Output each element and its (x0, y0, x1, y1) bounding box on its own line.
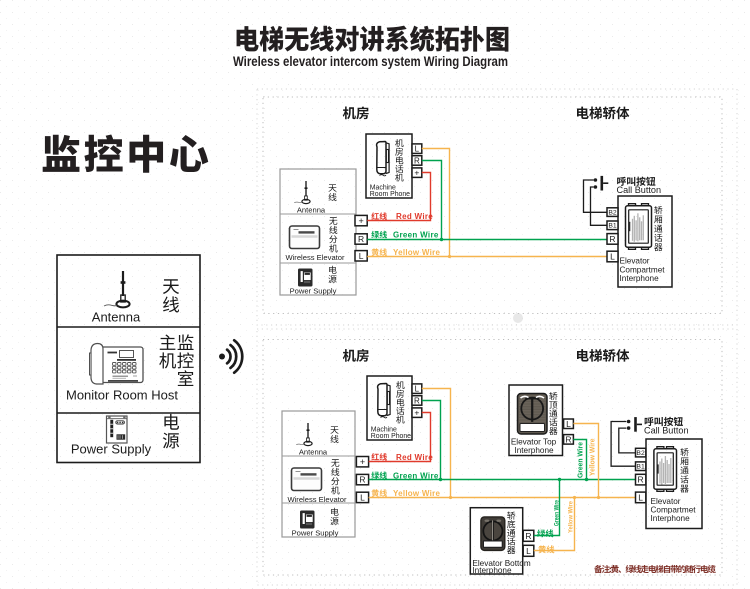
svg-text:Yellow Wire: Yellow Wire (393, 248, 440, 257)
svg-text:L: L (415, 145, 420, 154)
svg-text:Wireless Elevator: Wireless Elevator (285, 253, 345, 262)
svg-text:Interphone: Interphone (651, 514, 691, 523)
svg-text:L: L (638, 493, 643, 503)
svg-text:Antenna: Antenna (299, 448, 328, 457)
svg-text:B1: B1 (608, 223, 617, 230)
svg-text:R: R (525, 531, 531, 541)
svg-text:Power Supply: Power Supply (292, 528, 339, 537)
svg-text:Interphone: Interphone (514, 446, 554, 455)
svg-text:R: R (638, 475, 644, 485)
svg-text:Antenna: Antenna (297, 206, 326, 215)
svg-text:Antenna: Antenna (92, 310, 141, 325)
svg-text:R: R (414, 396, 420, 405)
svg-text:L: L (359, 251, 364, 261)
svg-text:R: R (358, 234, 364, 244)
svg-text:Wireless Elevator: Wireless Elevator (287, 495, 347, 504)
svg-text:Yellow Wire: Yellow Wire (393, 489, 440, 498)
svg-text:Green Wire: Green Wire (577, 442, 584, 478)
svg-text:Green Wire: Green Wire (393, 231, 439, 240)
svg-text:R: R (609, 234, 615, 244)
svg-text:Wireless elevator intercom sys: Wireless elevator intercom system Wiring… (233, 54, 508, 69)
svg-text:+: + (358, 216, 363, 226)
svg-text:Red Wire: Red Wire (396, 212, 433, 221)
svg-text:Green Wire: Green Wire (553, 500, 560, 526)
svg-text:R: R (414, 156, 420, 165)
svg-text:Elevator: Elevator (620, 257, 650, 266)
svg-text:Room Phone: Room Phone (370, 191, 410, 198)
svg-text:Interphone: Interphone (472, 566, 512, 575)
svg-text:L: L (566, 419, 571, 429)
svg-text:B2: B2 (608, 210, 617, 217)
svg-text:L: L (610, 252, 615, 262)
svg-text:+: + (414, 168, 419, 178)
svg-text:Monitor Room Host: Monitor Room Host (66, 388, 178, 403)
svg-text:R: R (359, 475, 365, 485)
svg-text:Room Phone: Room Phone (371, 433, 411, 440)
svg-text:Red Wire: Red Wire (396, 453, 433, 462)
svg-text:Call Button: Call Button (644, 425, 689, 435)
svg-text:B2: B2 (636, 450, 645, 457)
svg-text:B1: B1 (636, 464, 645, 471)
svg-text:+: + (360, 457, 365, 467)
svg-text:Green Wire: Green Wire (393, 471, 439, 480)
svg-text:Compartmet: Compartmet (620, 265, 666, 274)
svg-text:Power Supply: Power Supply (290, 286, 337, 295)
svg-text:Yellow Wire: Yellow Wire (567, 501, 574, 533)
svg-text:R: R (565, 434, 571, 444)
svg-text:Power Supply: Power Supply (71, 442, 152, 457)
svg-text:L: L (360, 493, 365, 503)
svg-text:+: + (414, 408, 419, 418)
svg-text:Call Button: Call Button (617, 185, 662, 195)
svg-text:Interphone: Interphone (620, 274, 660, 283)
svg-text:Yellow Wire: Yellow Wire (589, 438, 596, 476)
svg-text:L: L (526, 546, 531, 556)
svg-text:L: L (415, 385, 420, 394)
